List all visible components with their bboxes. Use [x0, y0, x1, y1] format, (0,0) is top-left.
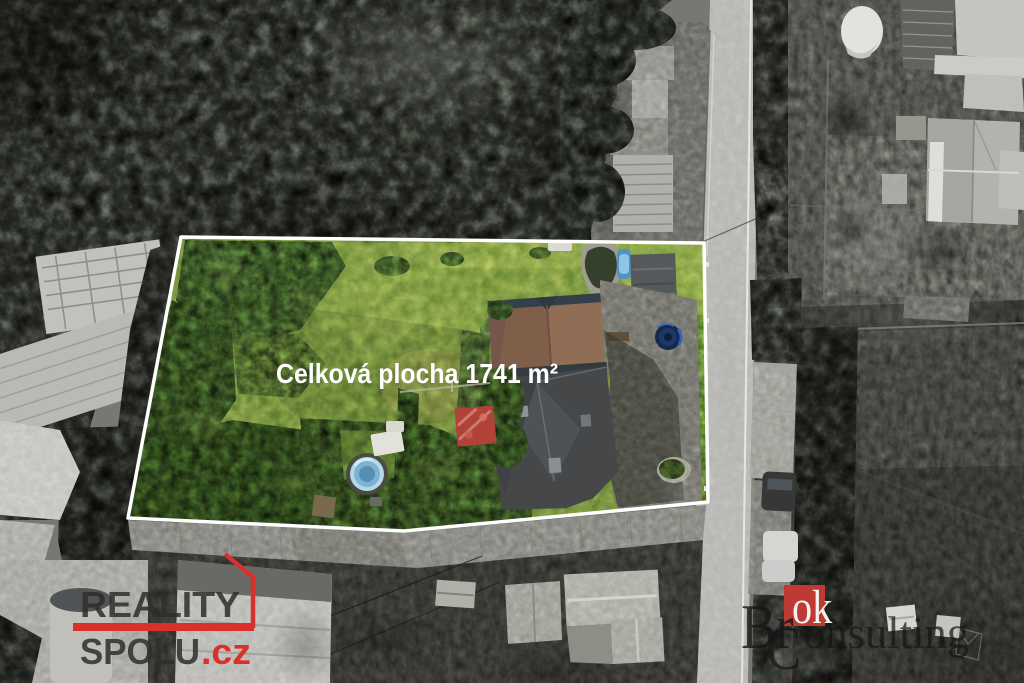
svg-text:SPOLU: SPOLU — [80, 631, 200, 672]
svg-text:REALITY: REALITY — [80, 584, 240, 625]
svg-text:.cz: .cz — [201, 631, 251, 672]
svg-text:C: C — [766, 615, 801, 683]
svg-text:onsulting: onsulting — [803, 607, 969, 658]
svg-text:Celková plocha 1741 m²: Celková plocha 1741 m² — [276, 358, 558, 389]
